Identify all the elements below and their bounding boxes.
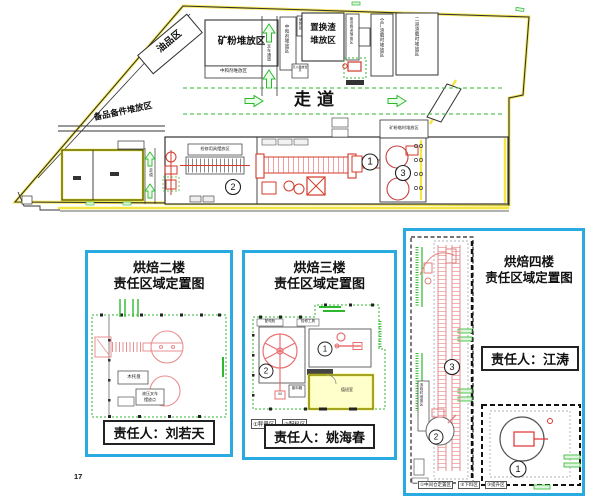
arrow-right-icon <box>388 96 406 107</box>
bin-label: 废料箱 <box>289 387 305 391</box>
highlighted-equipment <box>343 58 366 85</box>
svg-text:2: 2 <box>264 367 269 376</box>
floor2-title-line2: 责任区域定置图 <box>88 276 230 292</box>
marker-3: 3 <box>445 360 460 375</box>
green-ticks <box>534 455 580 489</box>
forklift-lane-label: 叉车通道 <box>266 44 272 62</box>
floor4-owner: 责任人：江涛 <box>480 346 580 371</box>
marker-2: 2 <box>226 180 241 195</box>
marker-2: 2 <box>429 430 443 444</box>
marker-3: 3 <box>396 166 411 181</box>
floor4-title: 烘焙四楼 责任区域定置图 <box>478 255 580 286</box>
waste-col-label: 废旧物资堆放区 <box>350 17 355 44</box>
extinguisher-label: 灭火器放置点 <box>292 66 308 73</box>
second-slag-label: 二道渣临时堆放区 <box>414 17 420 56</box>
box-right-label: 检修工具 <box>297 320 319 324</box>
duty-room <box>309 375 373 411</box>
walkway-small-label: 走道 <box>148 168 154 177</box>
green-tick <box>86 202 94 205</box>
marker-1: 1 <box>362 154 378 170</box>
feeder-tank: 2 <box>426 409 456 445</box>
box-left-label: 配电柜 <box>257 320 283 324</box>
side-col-label: 渣临时堆放区 <box>420 383 425 406</box>
floor3-title-line1: 烘焙三楼 <box>245 260 394 276</box>
floor4-plan-strip: 3 2 <box>408 233 480 489</box>
svg-text:1: 1 <box>515 464 520 474</box>
pallet-label: 木托盘 <box>120 375 148 380</box>
svg-text:3: 3 <box>449 362 454 372</box>
arrow-up-icon <box>263 70 275 88</box>
rooms <box>62 141 144 200</box>
floor2-owner: 责任人：刘若天 <box>88 420 230 445</box>
small-box <box>118 397 134 406</box>
small-box <box>190 196 201 202</box>
neutralizer-row-label: 中和剂堆放区 <box>205 69 262 74</box>
walkway-label: 走道 <box>294 90 340 109</box>
marker-1: 1 <box>318 342 332 356</box>
small-box <box>203 196 214 202</box>
floor3-title: 烘焙三楼 责任区域定置图 <box>245 260 394 293</box>
page-number: 17 <box>74 473 82 481</box>
marker-2: 2 <box>259 364 273 378</box>
spring-conveyor <box>95 337 151 357</box>
floor4-title-line2: 责任区域定置图 <box>478 271 580 287</box>
neutralizer-col-label: 中和剂堆放区 <box>284 24 290 53</box>
floor3-panel: 烘焙三楼 责任区域定置图 <box>242 250 397 460</box>
slag-area-label-1: 置换渣 <box>302 23 344 33</box>
forklift-point-label-1: 液压叉车 <box>137 392 163 396</box>
floor2-title-line1: 烘焙二楼 <box>88 260 230 276</box>
green-tick <box>123 202 131 205</box>
floor2-owner-box: 责任人：刘若天 <box>103 420 214 445</box>
floor4-tank-room: 1 <box>478 403 586 493</box>
arrow-right-icon <box>245 96 263 107</box>
pump-label: M <box>275 392 285 396</box>
svg-text:1: 1 <box>323 345 328 354</box>
legend-item: ①中间仓定置区 <box>418 481 453 489</box>
tank <box>500 417 553 461</box>
document-page: 2 1 <box>0 0 600 500</box>
small-box <box>414 459 424 475</box>
arrow-up-icon <box>145 184 155 198</box>
waste-small-box <box>359 28 370 46</box>
plant-slag-label: 全厂渣临时堆放区 <box>379 18 385 57</box>
room-label: 值班室 <box>335 388 359 392</box>
svg-text:3: 3 <box>400 168 405 178</box>
forklift-point-label-2: 摆放点 <box>137 398 163 402</box>
floor4-owner-box: 责任人：江涛 <box>481 346 579 371</box>
floor3-plan: 2 1 <box>249 299 394 417</box>
floor3-owner: 责任人：姚海春 <box>245 424 394 449</box>
floor3-owner-box: 责任人：姚海春 <box>264 424 375 449</box>
maintenance-label: 检修用具摆放区 <box>188 147 242 152</box>
mineral-temp-label: 矿粉临时堆放区 <box>380 126 428 131</box>
floor2-panel: 烘焙二楼 责任区域定置图 <box>85 250 233 457</box>
floor2-title: 烘焙二楼 责任区域定置图 <box>88 260 230 293</box>
slag-area-label-2: 堆放区 <box>302 36 344 46</box>
floor4-title-line1: 烘焙四楼 <box>478 255 580 271</box>
floor2-plan <box>90 299 230 423</box>
svg-text:2: 2 <box>434 433 439 442</box>
floor4-panel: 烘焙四楼 责任区域定置图 责任人：江涛 <box>403 228 585 496</box>
green-hatch-steps <box>319 307 345 311</box>
floor4-legend: ①中间仓定置区 ②下料区 ③提升区 <box>418 481 511 489</box>
legend-item: ③提升区 <box>485 481 507 489</box>
arrow-up-icon <box>145 152 155 166</box>
legend-item: ②下料区 <box>458 481 480 489</box>
gate <box>427 80 461 124</box>
svg-text:1: 1 <box>367 157 373 168</box>
svg-text:2: 2 <box>230 182 235 192</box>
floor3-title-line2: 责任区域定置图 <box>245 276 394 292</box>
marker-1: 1 <box>510 461 526 477</box>
roller-conveyor <box>180 157 250 174</box>
